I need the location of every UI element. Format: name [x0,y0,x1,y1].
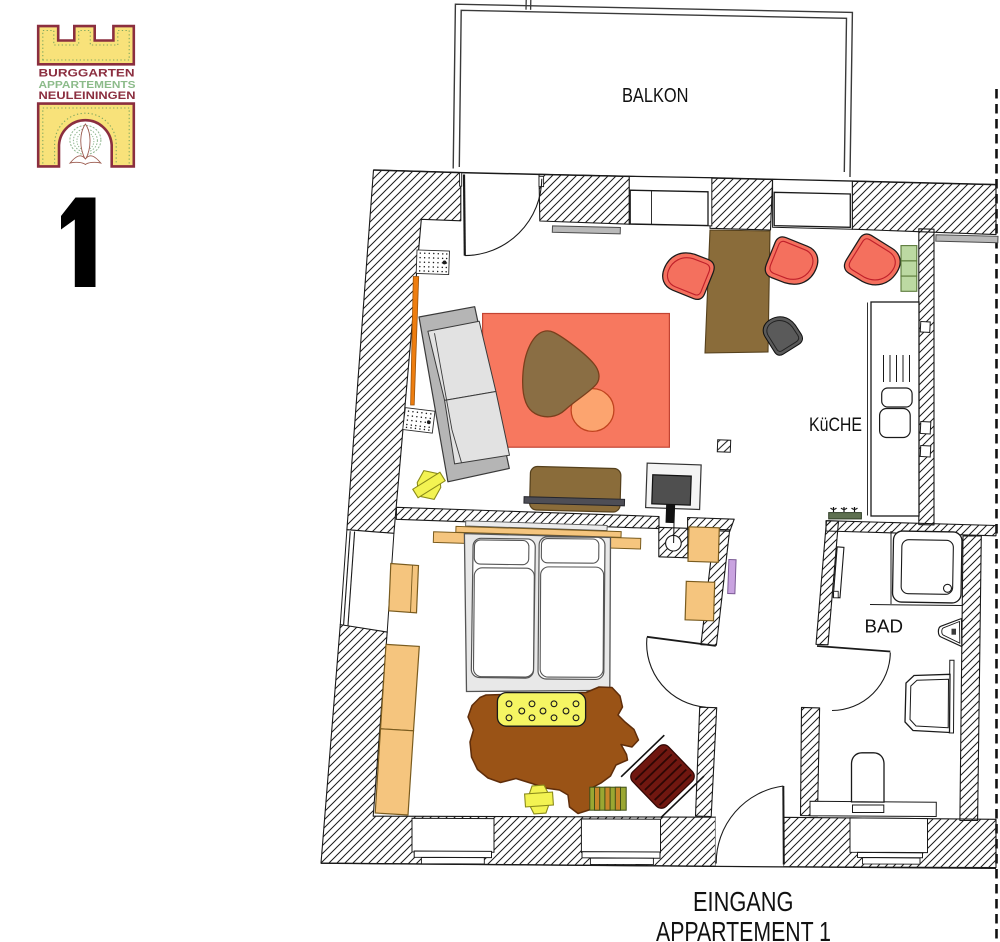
svg-text:NEULEININGEN: NEULEININGEN [39,90,136,102]
svg-text:BURGGARTEN: BURGGARTEN [39,68,135,80]
svg-text:KüCHE: KüCHE [809,415,862,436]
svg-text:EINGANG: EINGANG [693,886,794,917]
svg-text:APPARTEMENT 1: APPARTEMENT 1 [656,916,831,942]
svg-text:BALKON: BALKON [622,85,689,107]
svg-text:BAD: BAD [865,617,904,637]
